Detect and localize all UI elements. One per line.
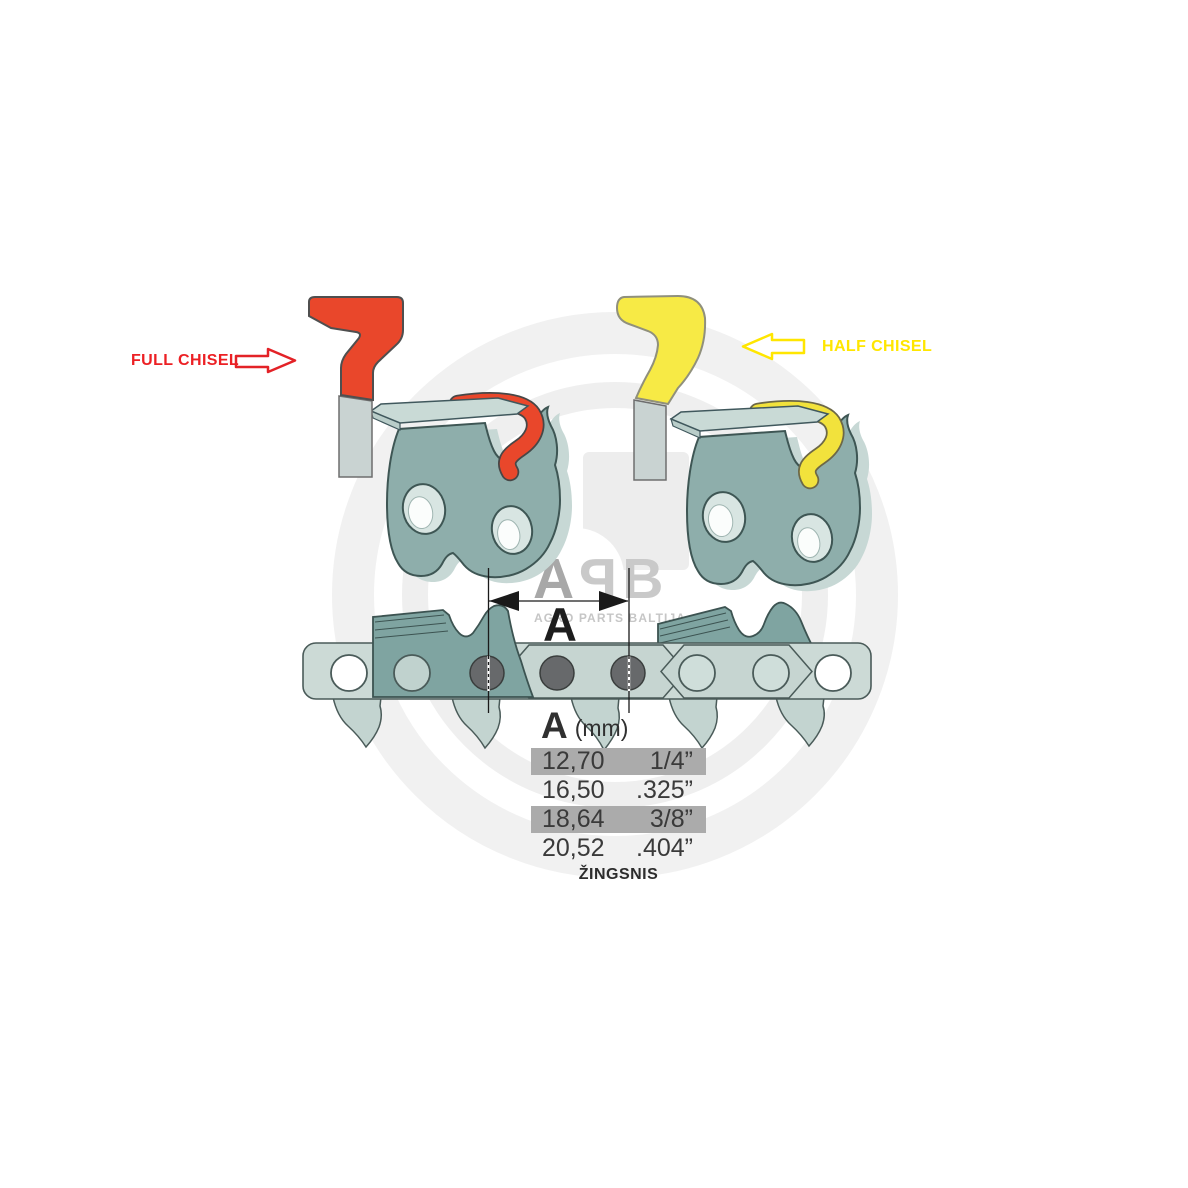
full-chisel-label: FULL CHISEL xyxy=(131,352,239,370)
rivet-hole-white-left xyxy=(331,655,367,691)
pitch-mm-value: 18,64 xyxy=(542,805,605,834)
half-chisel-profile xyxy=(617,296,705,480)
chainsaw-chain-illustration xyxy=(0,0,1188,1188)
chain-tie-strap-plate-center xyxy=(506,645,686,698)
pitch-inch-value: 1/4” xyxy=(650,747,693,776)
pitch-table-row: 16,50 .325” xyxy=(531,777,706,804)
pitch-inch-value: 3/8” xyxy=(650,805,693,834)
rivet-dark-a xyxy=(470,656,504,690)
half-chisel-arrow-icon xyxy=(743,334,804,359)
full-chisel-arrow-icon xyxy=(236,349,295,372)
pitch-table-row: 20,52 .404” xyxy=(531,835,706,862)
half-chisel-shank-bar xyxy=(634,400,666,480)
rivet-filled-right-1 xyxy=(679,655,715,691)
pitch-mm-value: 12,70 xyxy=(542,747,605,776)
half-chisel-label: HALF CHISEL xyxy=(822,338,932,356)
pitch-table-header-unit: (mm) xyxy=(575,717,629,742)
rivet-filled-right-2 xyxy=(753,655,789,691)
pitch-table-header: A (mm) xyxy=(541,709,628,742)
half-chisel-cutter-link xyxy=(671,406,872,591)
half-chisel-tooth-shape xyxy=(617,296,705,404)
pitch-table-caption: ŽINGSNIS xyxy=(531,866,706,884)
top-plate xyxy=(671,406,828,431)
pitch-dimension-letter: A xyxy=(543,601,577,648)
full-chisel-shank-bar xyxy=(339,396,372,477)
full-chisel-cutter-link xyxy=(371,398,572,583)
full-chisel-tooth-shape xyxy=(309,297,403,400)
pitch-mm-value: 16,50 xyxy=(542,776,605,805)
pitch-table-row: 12,70 1/4” xyxy=(531,748,706,775)
pitch-mm-value: 20,52 xyxy=(542,834,605,863)
top-plate xyxy=(371,398,528,423)
pitch-table-row: 18,64 3/8” xyxy=(531,806,706,833)
dimension-arrowhead-right xyxy=(599,591,629,611)
product-diagram-canvas: A P B AGRO PARTS BALTIJA xyxy=(0,0,1188,1188)
pitch-inch-value: .325” xyxy=(636,776,693,805)
pitch-table-header-symbol: A xyxy=(541,709,568,742)
rivet-hole-white-right xyxy=(815,655,851,691)
rivet-dark-b xyxy=(540,656,574,690)
rivet-filled-left xyxy=(394,655,430,691)
pitch-inch-value: .404” xyxy=(636,834,693,863)
full-chisel-profile xyxy=(309,297,403,477)
